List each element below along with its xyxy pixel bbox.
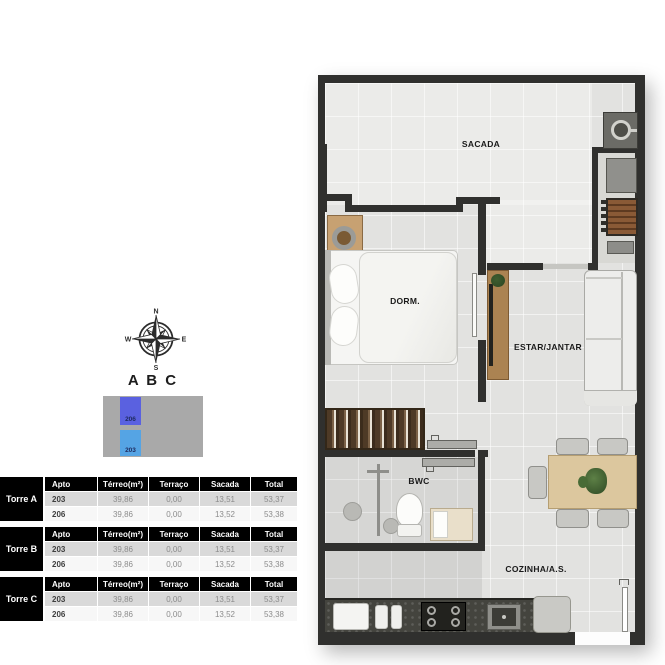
room-label-bwc: BWC [408,476,429,486]
table-lamp [332,226,356,250]
apto-cell: 203 [45,542,97,556]
value-cell: 53,38 [251,607,297,621]
value-cell: 39,86 [98,592,148,606]
wall-segment [325,543,485,551]
toilet-bowl [396,493,423,527]
tower-name: Torre C [0,577,43,621]
table-plant [585,468,607,494]
column-header: Sacada [200,527,250,541]
sofa-armrest [584,390,637,406]
hall-door-leaf [427,440,477,449]
entry-door-hinge [619,579,629,585]
compass-south-label: S [154,365,159,371]
stove-burner [451,618,460,627]
column-header: Sacada [200,577,250,591]
bwc-door-leaf [422,458,475,467]
balcony-faucet [628,129,637,132]
compass-east-label: E [182,337,187,344]
column-header: Total [251,477,297,491]
grill-shelf [607,241,634,254]
value-cell: 53,38 [251,557,297,571]
wall-segment [318,144,327,212]
wall-segment [478,450,485,547]
tower-name: Torre A [0,477,43,521]
floor-plan-brochure: N E S W A B C 206 203 Torre AAptoTérreo(… [0,0,665,665]
key-plan-unit-206: 206 [120,397,141,425]
column-header: Térreo(m²) [98,477,148,491]
wall-segment [478,203,486,275]
stove-burner [427,606,436,615]
sofa-armrest [586,277,622,279]
value-cell: 53,38 [251,507,297,521]
value-cell: 0,00 [149,607,199,621]
grill-cabinet [606,158,637,193]
floor-drain [343,502,362,521]
room-label-sacada: SACADA [462,139,500,149]
column-header: Total [251,527,297,541]
dining-chair [556,509,589,528]
wall-segment [318,75,645,83]
fridge [533,596,571,633]
value-cell: 0,00 [149,507,199,521]
value-cell: 0,00 [149,542,199,556]
tower-table: Torre BAptoTérreo(m²)TerraçoSacadaTotal2… [0,527,297,571]
stove-burner [427,618,436,627]
building-key-plan: 206 203 [103,396,203,457]
value-cell: 13,51 [200,492,250,506]
door-hinge [426,467,434,472]
tower-name: Torre B [0,527,43,571]
dorm-door-leaf [472,273,477,337]
value-cell: 39,86 [98,607,148,621]
door-hinge [431,435,439,440]
value-cell: 13,51 [200,542,250,556]
sliding-glass-door [543,264,588,269]
column-header: Terraço [149,527,199,541]
value-cell: 13,52 [200,557,250,571]
value-cell: 39,86 [98,542,148,556]
wall-segment [345,205,463,212]
entry-door-leaf [622,587,628,632]
wall-segment [478,340,486,402]
value-cell: 0,00 [149,492,199,506]
tv-panel [489,284,493,366]
table-plant [578,476,588,488]
wall-segment [592,147,598,270]
dining-chair [528,466,547,499]
wall-segment [325,450,475,457]
column-header: Apto [45,477,97,491]
dining-chair [556,438,589,455]
room-label-dorm: DORM. [390,296,420,306]
rack-plant [491,274,505,287]
column-header: Terraço [149,577,199,591]
shower-column [377,464,380,536]
compass-west-label: W [125,337,132,344]
value-cell: 53,37 [251,542,297,556]
column-header: Térreo(m²) [98,577,148,591]
wall-segment [318,632,575,645]
stove [421,602,466,631]
apto-cell: 203 [45,492,97,506]
column-header: Terraço [149,477,199,491]
wall-segment [487,263,543,270]
column-header: Apto [45,527,97,541]
washing-machine [333,603,369,630]
barbecue-grill [606,198,638,236]
tower-table: Torre AAptoTérreo(m²)TerraçoSacadaTotal2… [0,477,297,521]
apto-cell: 206 [45,557,97,571]
vanity-basin [433,511,448,538]
value-cell: 53,37 [251,592,297,606]
duvet [359,252,457,363]
tower-table: Torre CAptoTérreo(m²)TerraçoSacadaTotal2… [0,577,297,621]
room-label-estar-jantar: ESTAR/JANTAR [514,342,582,352]
sink-drain [502,615,506,619]
compass-north-label: N [153,309,158,316]
apto-cell: 206 [45,607,97,621]
cutting-board [391,605,402,629]
unit-tables: Torre AAptoTérreo(m²)TerraçoSacadaTotal2… [0,477,297,627]
value-cell: 0,00 [149,557,199,571]
stove-burner [451,606,460,615]
column-header: Sacada [200,477,250,491]
wardrobe-clothes [325,408,425,450]
apto-cell: 206 [45,507,97,521]
column-header: Total [251,577,297,591]
towers-title: A B C [103,372,203,389]
compass-rose-icon: N E S W [124,307,188,371]
value-cell: 13,52 [200,607,250,621]
floor-plan: SACADA DORM. ESTAR/JANTAR BWC COZINHA/A.… [315,72,648,648]
column-header: Térreo(m²) [98,527,148,541]
shower-arm [367,470,389,473]
key-plan-unit-203: 203 [120,430,141,456]
bed-headboard [325,250,331,365]
column-header: Apto [45,577,97,591]
cutting-board [375,605,388,629]
value-cell: 0,00 [149,592,199,606]
value-cell: 13,52 [200,507,250,521]
toilet-tank [397,524,422,537]
value-cell: 53,37 [251,492,297,506]
value-cell: 39,86 [98,492,148,506]
value-cell: 39,86 [98,557,148,571]
apto-cell: 203 [45,592,97,606]
dining-chair [597,438,628,455]
value-cell: 13,51 [200,592,250,606]
wall-segment [630,632,645,645]
sofa-cushion-split [586,338,622,340]
dining-chair [597,509,629,528]
value-cell: 39,86 [98,507,148,521]
room-label-cozinha: COZINHA/A.S. [505,564,566,574]
grill-handles [601,200,606,234]
